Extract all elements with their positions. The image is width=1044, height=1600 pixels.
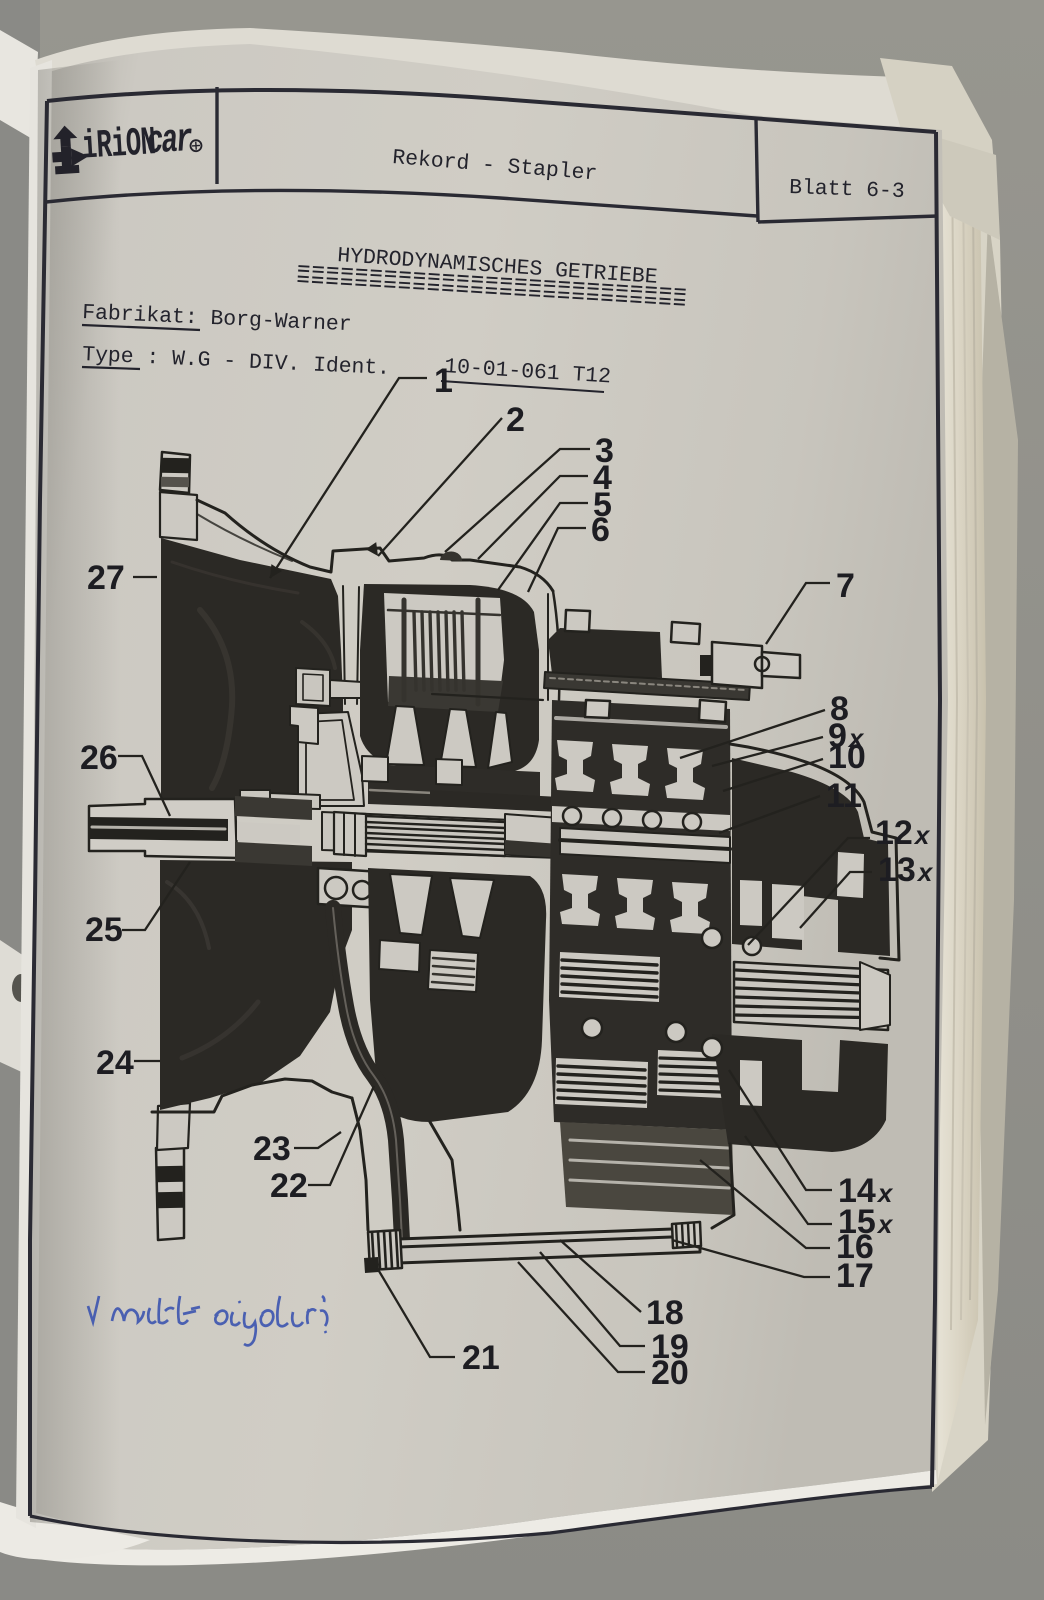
svg-text:1: 1 bbox=[434, 362, 453, 400]
svg-text:21: 21 bbox=[462, 1339, 500, 1377]
svg-text:Blatt 6-3: Blatt 6-3 bbox=[789, 176, 905, 204]
svg-text:25: 25 bbox=[85, 911, 123, 949]
svg-text:10: 10 bbox=[828, 738, 866, 776]
svg-text:6: 6 bbox=[591, 511, 610, 549]
svg-text:17: 17 bbox=[836, 1257, 874, 1295]
svg-text:2: 2 bbox=[506, 401, 525, 439]
svg-text:7: 7 bbox=[836, 567, 855, 605]
svg-text:23: 23 bbox=[253, 1130, 291, 1168]
svg-text:27: 27 bbox=[87, 559, 125, 597]
svg-text:12x: 12x bbox=[875, 814, 931, 852]
svg-text:26: 26 bbox=[80, 739, 118, 777]
svg-text:20: 20 bbox=[651, 1354, 689, 1392]
svg-text:13x: 13x bbox=[878, 851, 934, 889]
svg-text:11: 11 bbox=[826, 777, 862, 815]
svg-text:car: car bbox=[145, 118, 193, 166]
svg-text:24: 24 bbox=[96, 1044, 134, 1082]
svg-text:22: 22 bbox=[270, 1167, 308, 1205]
svg-text:18: 18 bbox=[646, 1294, 684, 1332]
